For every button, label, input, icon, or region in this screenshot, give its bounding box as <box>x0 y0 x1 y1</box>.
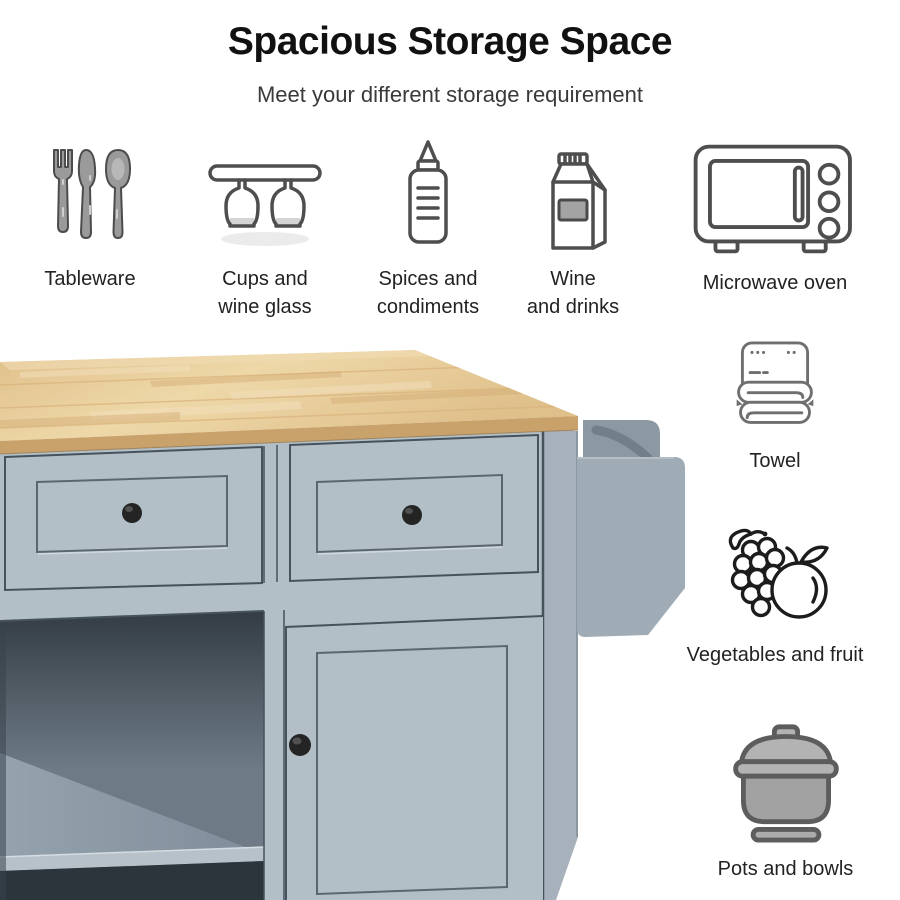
cabinet-door <box>285 616 543 900</box>
page-title: Spacious Storage Space <box>0 20 900 64</box>
open-shelf <box>0 611 264 900</box>
feature-label: Pots and bowls <box>718 855 854 883</box>
feature-cups: Cups and wine glass <box>180 136 350 321</box>
microwave-icon <box>689 136 861 258</box>
feature-tableware: Tableware <box>8 136 172 293</box>
door-knob <box>289 734 311 756</box>
grapes-and-fruit-icon <box>717 512 833 630</box>
feature-label: Microwave oven <box>703 269 848 297</box>
cabinet-side-panel <box>543 428 578 900</box>
feature-label: Spices and condiments <box>377 265 479 321</box>
feature-label: Cups and wine glass <box>218 265 311 321</box>
cooking-pot-icon <box>726 708 846 844</box>
feature-vegetables: Vegetables and fruit <box>653 512 897 669</box>
cutlery-icon <box>42 136 138 254</box>
wine-glass-rack-icon <box>199 136 331 254</box>
center-stile <box>264 610 285 900</box>
feature-label: Vegetables and fruit <box>687 641 864 669</box>
drawer-knob <box>402 505 422 525</box>
feature-spices: Spices and condiments <box>345 136 511 321</box>
squeeze-bottle-icon <box>388 136 468 254</box>
kitchen-island-image <box>0 340 690 900</box>
page: Spacious Storage Space Meet your differe… <box>0 0 900 900</box>
drink-carton-icon <box>531 136 615 254</box>
feature-label: Towel <box>749 447 800 475</box>
feature-towel: Towel <box>690 336 860 475</box>
feature-microwave: Microwave oven <box>660 136 890 297</box>
feature-label: Tableware <box>44 265 135 293</box>
page-subtitle: Meet your different storage requirement <box>0 82 900 108</box>
folded-towel-icon <box>729 336 821 436</box>
feature-label: Wine and drinks <box>527 265 619 321</box>
feature-wine: Wine and drinks <box>495 136 651 321</box>
drawer-knob <box>122 503 142 523</box>
feature-pots: Pots and bowls <box>678 708 893 883</box>
